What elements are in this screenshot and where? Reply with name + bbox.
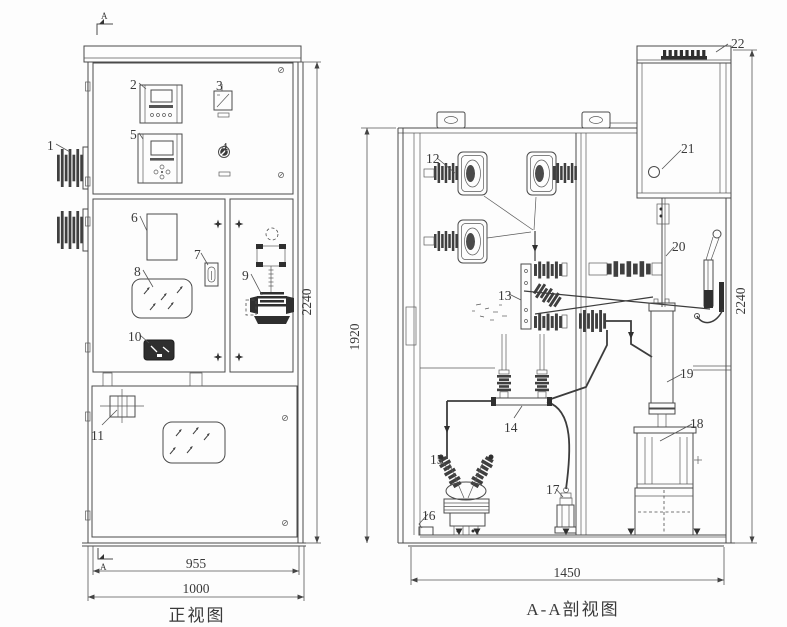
protection-controller	[138, 134, 182, 183]
section-view: 1920 2240 1450 12 13 14 15 16 17 18 19 2…	[347, 36, 757, 619]
interlock-handle	[100, 389, 144, 423]
observation-window-lower	[163, 422, 225, 463]
part-label-4: 4	[221, 140, 228, 155]
part-label-13: 13	[498, 288, 512, 303]
part-label-9: 9	[242, 268, 249, 283]
panel-meter	[214, 91, 232, 117]
part-label-8: 8	[134, 264, 141, 279]
section-marker-bottom-label: A	[100, 562, 107, 572]
main-conductors	[444, 291, 710, 489]
dim-base-width: 1450	[554, 565, 581, 580]
open-position-dashes	[472, 304, 507, 320]
section-view-caption: A-A剖视图	[526, 600, 619, 619]
partition-bushing-upper	[589, 261, 662, 277]
part-label-3: 3	[216, 78, 223, 93]
door-lock	[205, 263, 218, 286]
relay-device	[140, 85, 182, 123]
front-view: A	[47, 11, 321, 625]
part-label-7: 7	[194, 247, 201, 262]
section-marker-top: A	[97, 11, 113, 35]
part-label-5: 5	[130, 127, 137, 142]
part-label-15: 15	[430, 452, 444, 467]
section-marker-bottom: A	[98, 548, 113, 572]
section-part-labels: 12 13 14 15 16 17 18 19 20 21 22	[419, 36, 745, 528]
part-label-17: 17	[546, 482, 560, 497]
part-label-18: 18	[690, 416, 704, 431]
switchgear-drawing: A	[0, 0, 787, 627]
front-view-caption: 正视图	[169, 606, 226, 625]
observation-window-upper	[132, 279, 192, 318]
dim-front-height: 2240	[299, 288, 314, 315]
part-label-10: 10	[128, 329, 142, 344]
part-label-6: 6	[131, 210, 138, 225]
front-dimensions: 955 1000 2240	[88, 62, 321, 601]
operating-mechanism	[246, 228, 294, 324]
side-bushing-group	[57, 147, 88, 251]
part-label-16: 16	[422, 508, 436, 523]
low-voltage-compartment	[637, 46, 731, 198]
nameplate	[147, 214, 177, 260]
dim-body-height: 1920	[347, 323, 362, 350]
part-label-20: 20	[672, 239, 686, 254]
part-label-14: 14	[504, 420, 518, 435]
voltage-transformer	[437, 455, 496, 536]
part-label-12: 12	[426, 151, 440, 166]
part-label-19: 19	[680, 366, 694, 381]
contact-box-group	[424, 152, 577, 263]
dim-width: 1000	[183, 581, 210, 596]
floor-bracket	[419, 527, 433, 535]
drawing-canvas: A	[0, 0, 787, 627]
door-fasteners	[214, 220, 244, 362]
operating-rod	[657, 198, 669, 307]
busbar-assembly	[491, 334, 552, 406]
insulating-cylinder	[649, 299, 675, 427]
disconnector-assembly	[472, 262, 567, 331]
dim-section-height: 2240	[733, 287, 748, 314]
part-label-21: 21	[681, 141, 695, 156]
part-label-1: 1	[47, 138, 54, 153]
part-label-2: 2	[130, 77, 137, 92]
section-marker-top-label: A	[101, 11, 108, 21]
partition-bushing-lower	[579, 310, 606, 332]
part-label-22: 22	[731, 36, 745, 51]
base-unit	[634, 427, 702, 535]
part-label-11: 11	[91, 428, 104, 443]
dim-door-width: 955	[186, 556, 207, 571]
